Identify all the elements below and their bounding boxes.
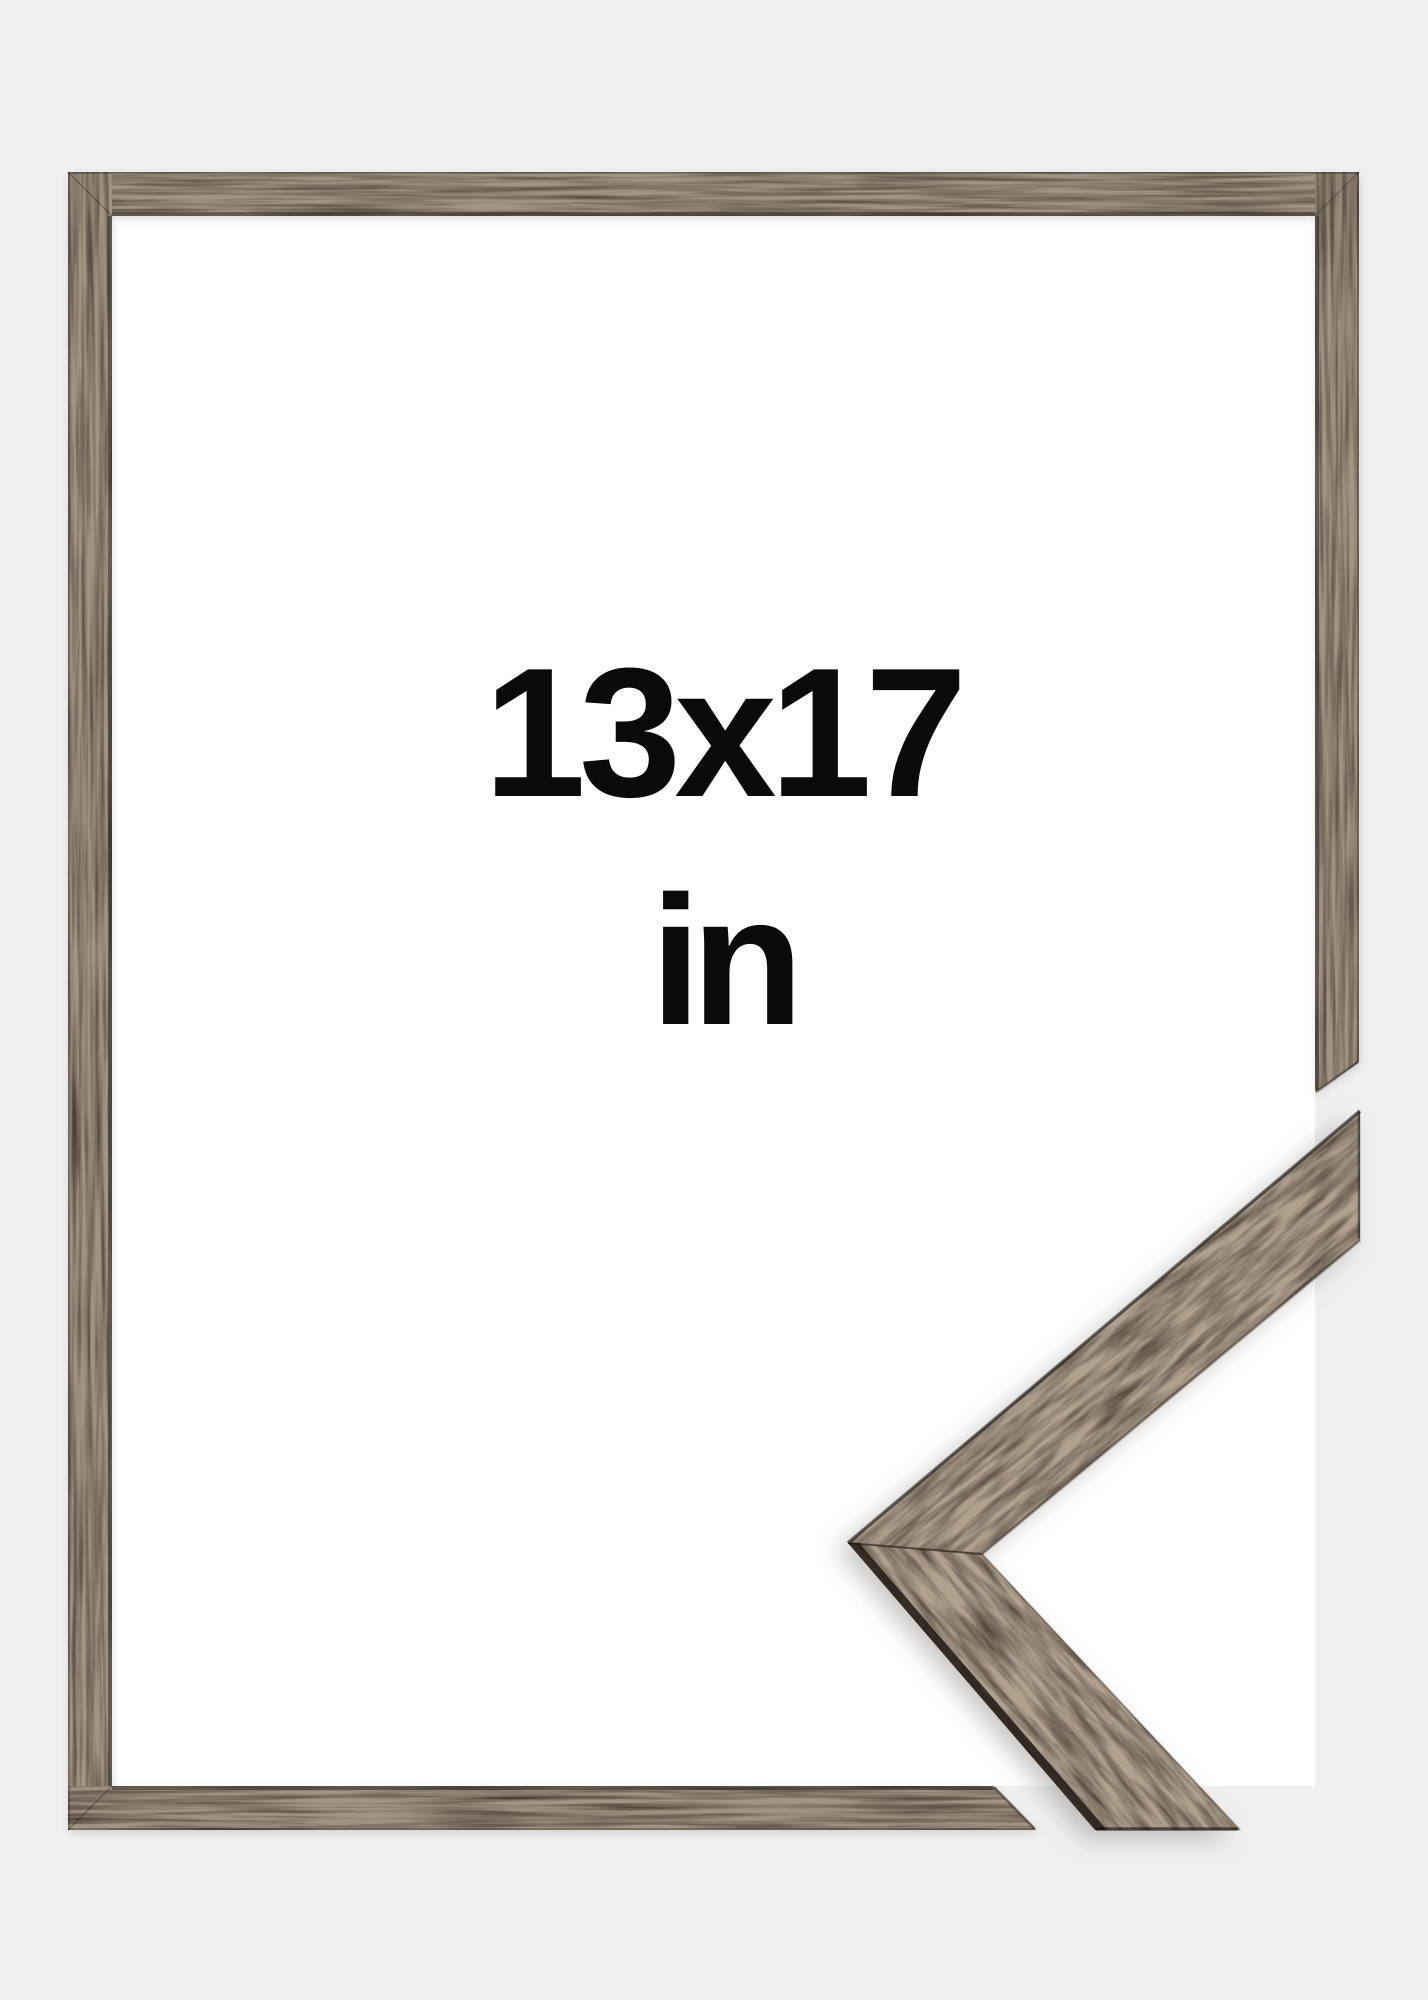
unit-label: in — [8, 846, 1428, 1074]
size-label-block: 13x17 in — [8, 618, 1428, 1074]
size-label: 13x17 — [8, 618, 1428, 846]
product-image: 13x17 in — [0, 0, 1428, 2000]
